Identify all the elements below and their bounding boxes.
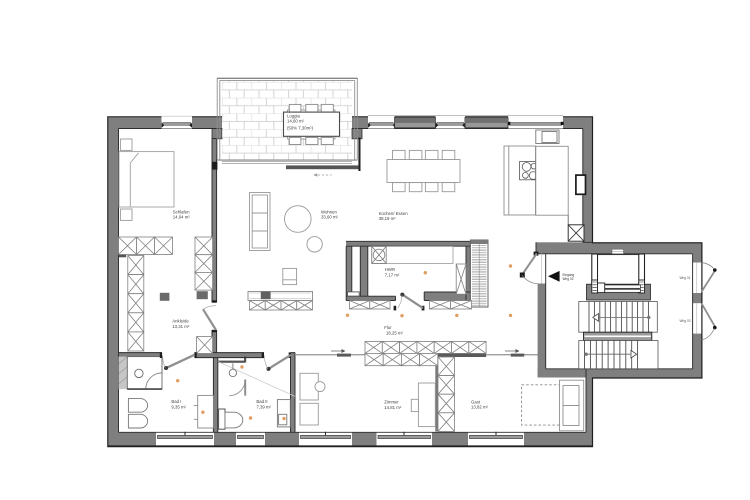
svg-text:13,31 m²: 13,31 m² [172, 324, 190, 329]
svg-text:14,81 m²: 14,81 m² [384, 405, 402, 410]
svg-text:33,60 m²: 33,60 m² [321, 215, 339, 220]
svg-text:(50% 7,30m²): (50% 7,30m²) [287, 126, 314, 131]
svg-text:Whg 03: Whg 03 [680, 319, 691, 323]
svg-text:7,17 m²: 7,17 m² [385, 272, 400, 277]
svg-text:Whg 01: Whg 01 [680, 276, 691, 280]
svg-text:7,39 m²: 7,39 m² [256, 404, 271, 409]
svg-text:14,60 m²: 14,60 m² [287, 119, 305, 124]
svg-text:18,25 m²: 18,25 m² [386, 330, 404, 335]
svg-text:9,35 m²: 9,35 m² [171, 404, 186, 409]
svg-text:14,04 m²: 14,04 m² [173, 215, 191, 220]
svg-text:Whg 02: Whg 02 [563, 277, 574, 281]
svg-text:38,19 m²: 38,19 m² [379, 216, 397, 221]
svg-text:13,82 m²: 13,82 m² [471, 405, 489, 410]
